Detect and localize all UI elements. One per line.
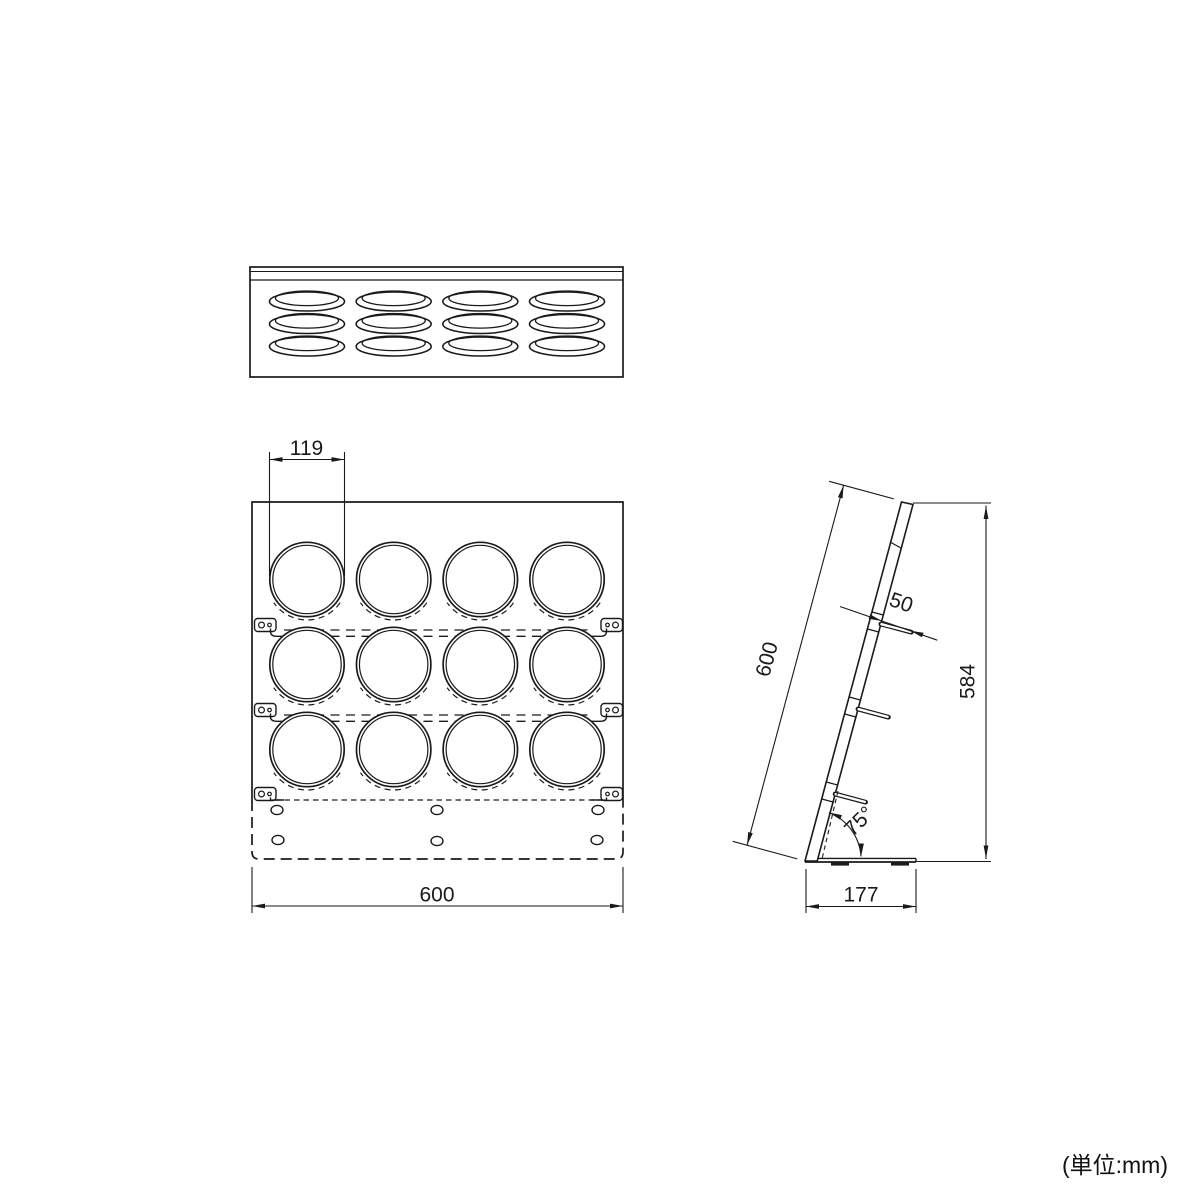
- dim-text-hook-projection: 50: [886, 588, 916, 617]
- technical-drawing: 119 600 600 584 50 75° 177 (単位:mm): [0, 0, 1200, 1200]
- dim-text-tilt-angle: 75°: [840, 802, 879, 841]
- dim-text-overall-height: 584: [957, 664, 980, 699]
- dim-text-panel-width: 600: [419, 884, 454, 907]
- top-view-outline: [250, 267, 623, 377]
- front-bottle-holes: [270, 542, 604, 790]
- side-base-foot-left: [831, 862, 849, 866]
- ext-line: [733, 841, 798, 859]
- front-base-holes: [271, 805, 604, 845]
- top-view: [250, 267, 623, 377]
- dim-text-base-depth: 177: [843, 884, 878, 907]
- top-view-hole-ellipses: [270, 291, 605, 356]
- front-view: [252, 502, 623, 859]
- dim-text-slant-length: 600: [752, 639, 783, 679]
- dim-text-hole-diameter: 119: [290, 437, 323, 460]
- unit-note: (単位:mm): [1062, 1152, 1168, 1178]
- side-base-foot-right: [891, 862, 909, 866]
- front-base-hidden-outline: [252, 800, 623, 859]
